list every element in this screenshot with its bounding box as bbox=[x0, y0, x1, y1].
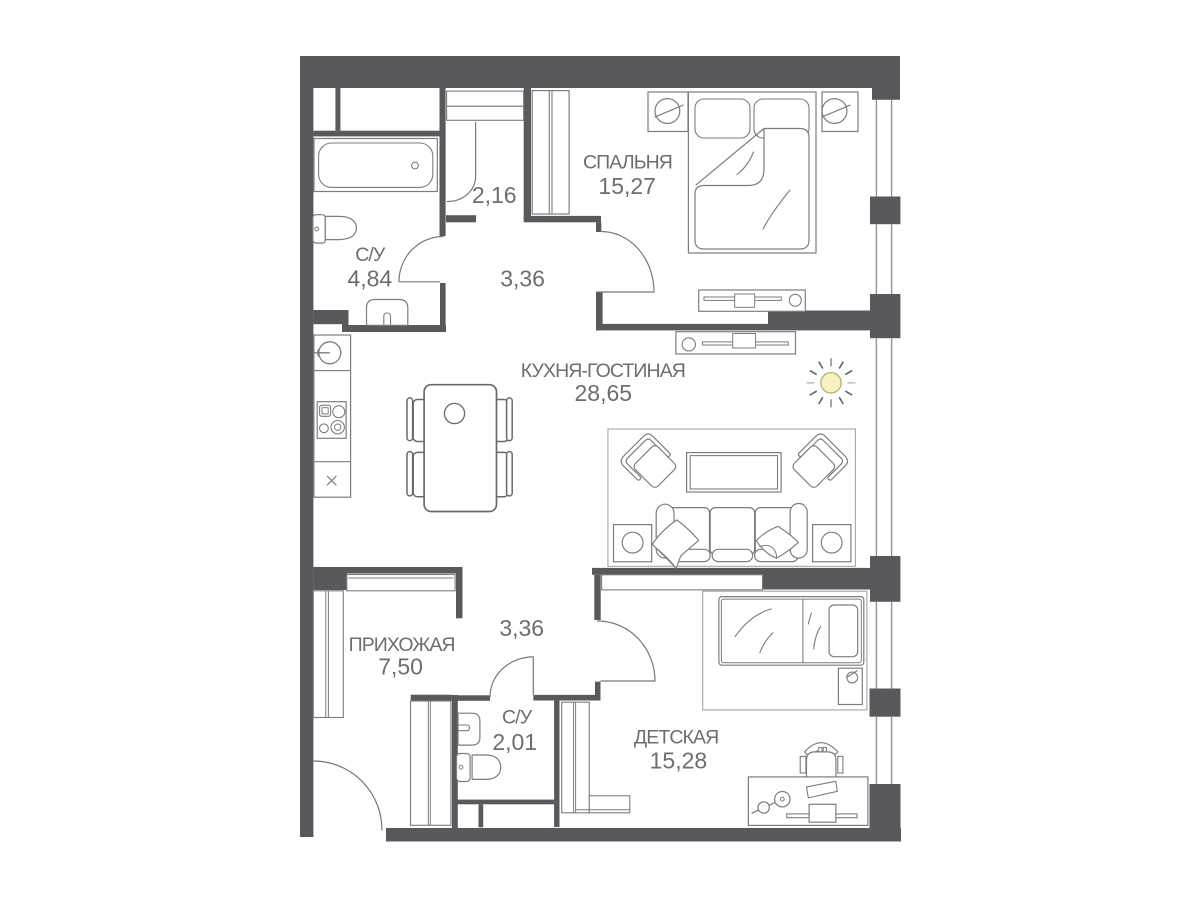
svg-text:КУХНЯ-ГОСТИНАЯ: КУХНЯ-ГОСТИНАЯ bbox=[521, 360, 685, 382]
svg-text:28,65: 28,65 bbox=[575, 380, 633, 406]
svg-text:15,28: 15,28 bbox=[650, 748, 708, 774]
svg-text:3,36: 3,36 bbox=[499, 615, 544, 641]
svg-text:3,36: 3,36 bbox=[500, 266, 545, 292]
svg-text:4,84: 4,84 bbox=[347, 266, 392, 292]
svg-text:С/У: С/У bbox=[355, 244, 386, 266]
svg-text:С/У: С/У bbox=[502, 707, 533, 729]
svg-text:2,16: 2,16 bbox=[472, 182, 517, 208]
svg-text:15,27: 15,27 bbox=[598, 173, 656, 199]
svg-text:7,50: 7,50 bbox=[378, 654, 423, 680]
svg-text:ДЕТСКАЯ: ДЕТСКАЯ bbox=[634, 727, 718, 749]
svg-text:СПАЛЬНЯ: СПАЛЬНЯ bbox=[583, 152, 672, 174]
svg-text:2,01: 2,01 bbox=[492, 729, 537, 755]
